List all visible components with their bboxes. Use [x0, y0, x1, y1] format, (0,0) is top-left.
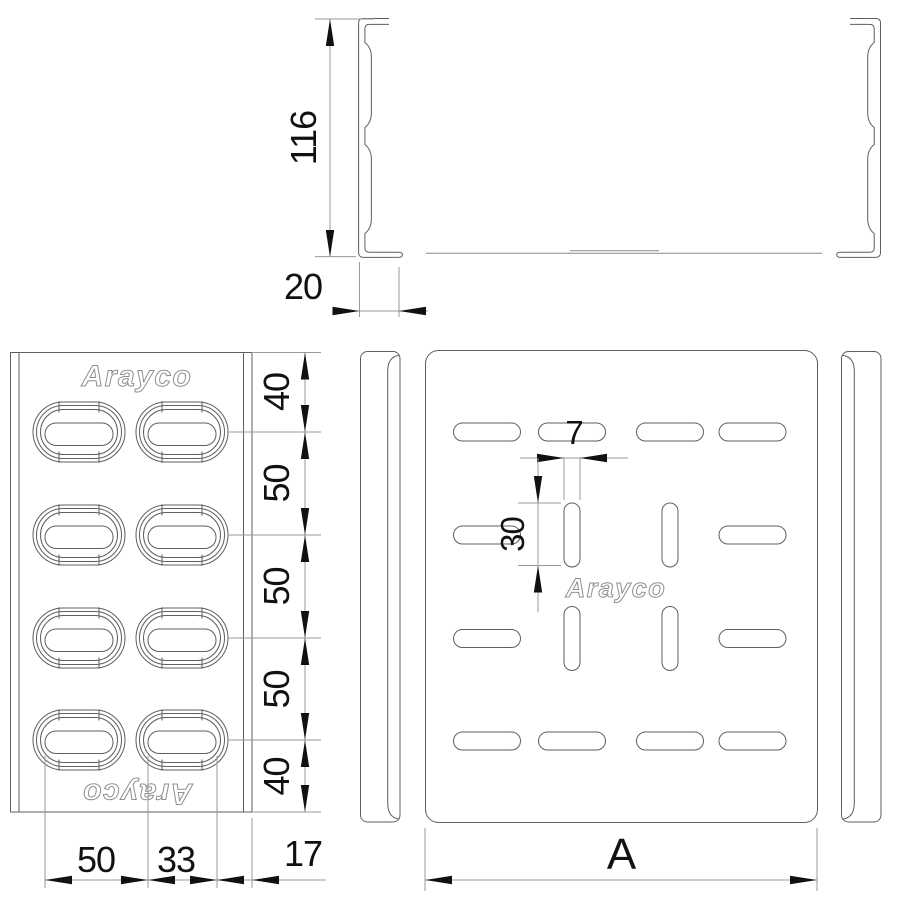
side-view: Arayco Arayco [11, 353, 253, 813]
dim-section-flange-20: 20 [284, 262, 428, 317]
arrowhead [399, 307, 426, 315]
slot-h [637, 423, 704, 441]
arrowhead [252, 876, 279, 884]
slot-h [719, 630, 786, 648]
plan-right-flange-fold [842, 355, 854, 819]
plan-view: Arayco [361, 351, 882, 823]
louver-slot [136, 607, 228, 669]
arrowhead [301, 785, 309, 812]
plan-right-flange [842, 352, 882, 823]
arrowhead [326, 19, 334, 46]
dim-label-7: 7 [565, 414, 582, 451]
slot-v [662, 503, 678, 567]
dim-label-50-c: 50 [256, 670, 297, 708]
slot-h [539, 732, 606, 750]
arrowhead [301, 611, 309, 638]
dim-label-116: 116 [283, 111, 324, 165]
dim-label-50-b: 50 [256, 567, 297, 605]
slot-h [719, 423, 786, 441]
arrowhead [301, 713, 309, 740]
slot-h [454, 630, 521, 648]
brand-logo-bottom-rotated: Arayco [82, 777, 194, 810]
dim-label-50-pitch: 50 [77, 839, 115, 880]
technical-drawing-page: Arayco Arayco [0, 0, 908, 908]
plan-left-flange-fold [388, 355, 400, 819]
arrowhead [301, 353, 309, 380]
arrowhead [301, 535, 309, 562]
dim-label-30: 30 [494, 517, 531, 552]
slot-v [564, 607, 580, 671]
slot-v [662, 607, 678, 671]
arrowhead [301, 740, 309, 767]
louver-slot [136, 709, 228, 771]
arrowhead [301, 508, 309, 535]
dim-label-50-a: 50 [256, 464, 297, 502]
section-view [359, 19, 881, 258]
arrowhead [121, 876, 148, 884]
arrowhead [580, 454, 607, 462]
arrowhead [45, 876, 72, 884]
slot-h [719, 732, 786, 750]
slot-h [454, 423, 521, 441]
dim-label-17: 17 [284, 833, 322, 874]
brand-logo-top: Arayco [81, 360, 193, 393]
slot-v [564, 503, 580, 567]
louver-slot [136, 401, 228, 463]
arrowhead [301, 638, 309, 665]
louver-slot [33, 709, 125, 771]
arrowhead [534, 566, 542, 593]
louver-slot [33, 607, 125, 669]
arrowhead [301, 432, 309, 459]
dim-label-20: 20 [284, 266, 322, 307]
dim-side-vertical-chain: 40 50 50 50 40 [228, 353, 321, 813]
arrowhead [534, 476, 542, 503]
dim-label-33: 33 [157, 839, 195, 880]
slot-h [454, 732, 521, 750]
arrowhead [425, 876, 452, 884]
slot-h [719, 526, 786, 544]
slot-h [637, 732, 704, 750]
arrowhead [301, 405, 309, 432]
plan-slots-row-1 [454, 423, 787, 441]
plan-left-flange [361, 352, 401, 823]
dim-label-40-top: 40 [256, 373, 297, 411]
section-right-wall-inner-louvers [850, 24, 874, 252]
arrowhead [326, 230, 334, 257]
section-left-wall-inner-louvers [365, 24, 389, 252]
louver-slot [33, 504, 125, 566]
louver-slot [136, 504, 228, 566]
arrowhead [790, 876, 817, 884]
dim-section-height-116: 116 [283, 19, 374, 257]
drawing-canvas: Arayco Arayco [0, 0, 908, 908]
arrowhead [333, 307, 360, 315]
dim-plan-slot-length-30: 30 [494, 458, 561, 612]
dim-label-40-bottom: 40 [256, 757, 297, 795]
side-panel-fold-lines [19, 353, 244, 813]
plan-slots-row-3 [454, 607, 787, 671]
arrowhead [217, 876, 244, 884]
louver-slot [33, 401, 125, 463]
dim-label-A: A [607, 830, 637, 879]
dim-plan-overall-width-A: A [425, 828, 817, 891]
brand-logo-plan: Arayco [565, 573, 667, 603]
plan-slots-row-4 [454, 732, 787, 750]
arrowhead [537, 454, 564, 462]
